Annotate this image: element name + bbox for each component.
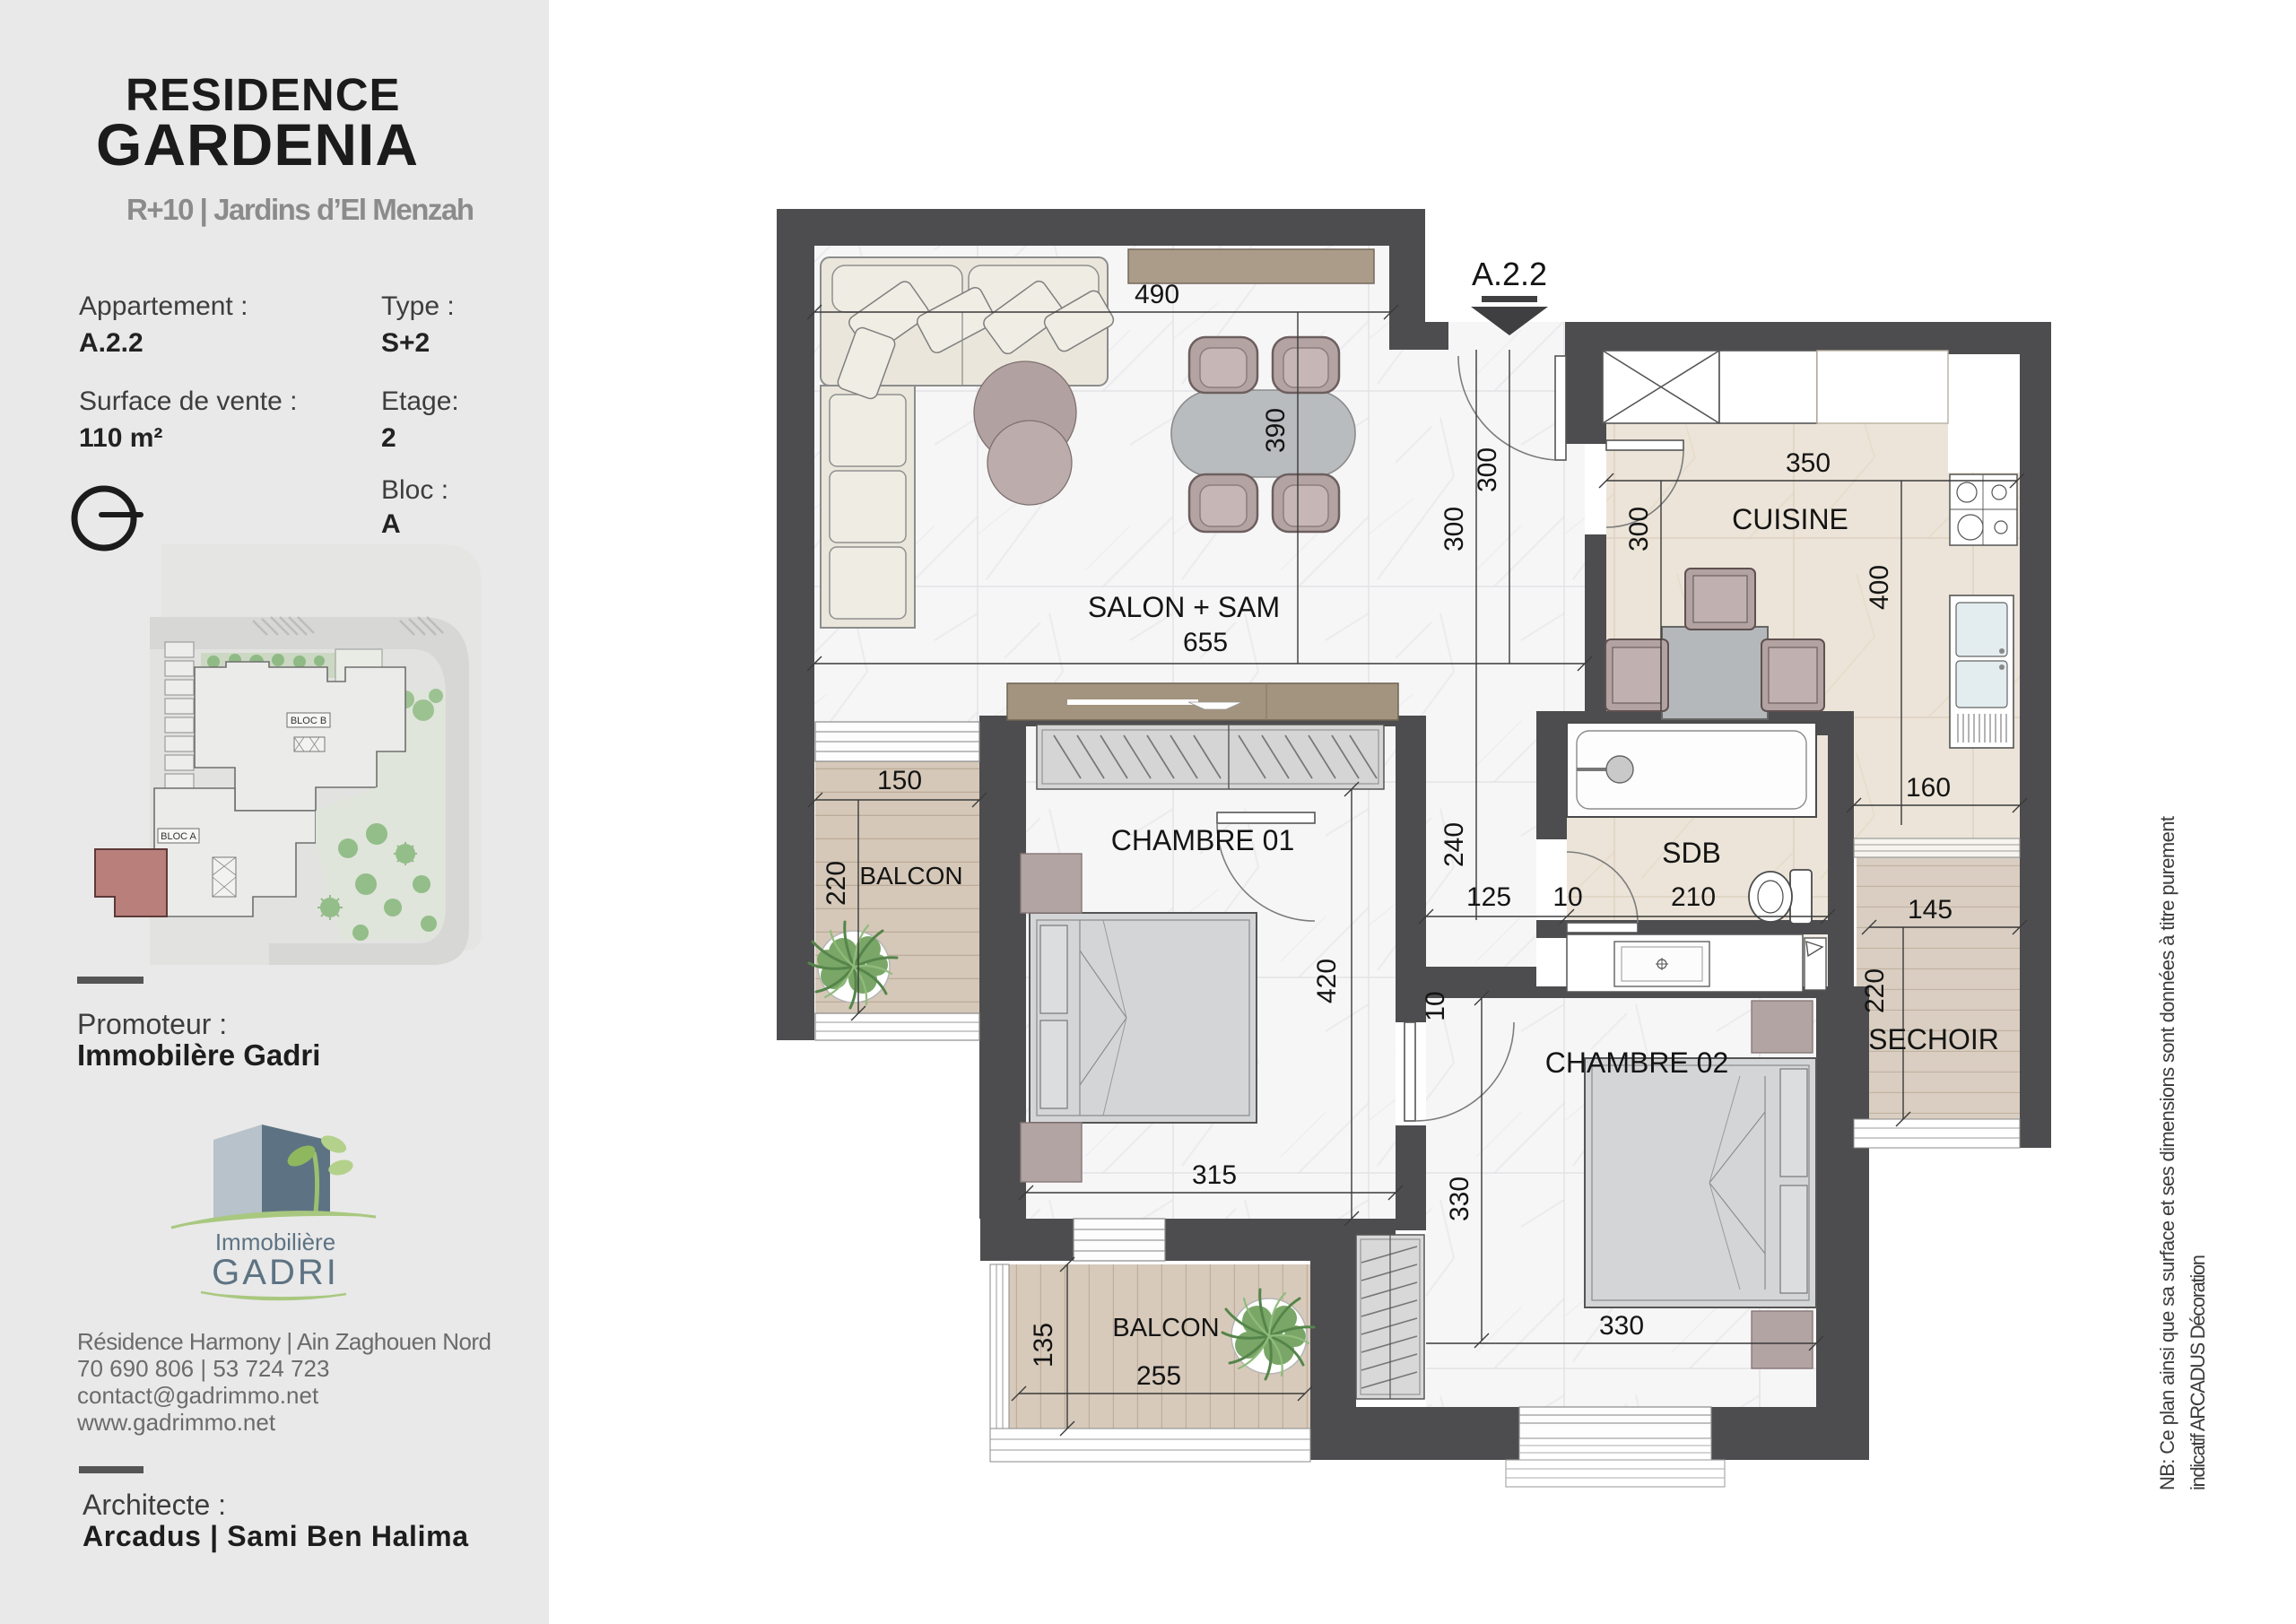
svg-text:300: 300: [1439, 507, 1469, 551]
svg-text:A: A: [381, 509, 401, 539]
svg-text:315: 315: [1192, 1160, 1237, 1190]
svg-text:490: 490: [1135, 280, 1179, 309]
svg-text:210: 210: [1671, 882, 1716, 912]
svg-text:330: 330: [1445, 1177, 1474, 1221]
svg-text:Arcadus | Sami Ben Halima: Arcadus | Sami Ben Halima: [83, 1520, 468, 1552]
svg-text:220: 220: [822, 861, 851, 906]
svg-text:Type :: Type :: [381, 291, 455, 321]
svg-text:SALON + SAM: SALON + SAM: [1088, 591, 1280, 623]
svg-text:contact@gadrimmo.net: contact@gadrimmo.net: [77, 1382, 319, 1409]
svg-text:110 m²: 110 m²: [79, 423, 162, 453]
svg-text:300: 300: [1624, 507, 1654, 551]
svg-text:Surface de vente :: Surface de vente :: [79, 386, 298, 416]
svg-text:420: 420: [1312, 959, 1342, 1003]
svg-text:655: 655: [1183, 628, 1228, 657]
svg-text:GADRI: GADRI: [212, 1253, 339, 1292]
svg-text:GARDENIA: GARDENIA: [96, 111, 419, 178]
svg-text:A.2.2: A.2.2: [79, 328, 143, 358]
svg-text:BALCON: BALCON: [859, 862, 962, 890]
svg-text:CHAMBRE 02: CHAMBRE 02: [1545, 1046, 1729, 1079]
svg-text:BLOC B: BLOC B: [291, 716, 326, 726]
svg-text:10: 10: [1552, 882, 1582, 912]
svg-text:Résidence Harmony | Ain Zaghou: Résidence Harmony | Ain Zaghouen Nord: [77, 1328, 491, 1355]
svg-text:CUISINE: CUISINE: [1732, 503, 1848, 535]
svg-text:Etage:: Etage:: [381, 386, 459, 416]
svg-text:NB: Ce plan ainsi que sa surfa: NB: Ce plan ainsi que sa surface et ses …: [2156, 816, 2179, 1490]
svg-text:R+10 | Jardins d’El Menzah: R+10 | Jardins d’El Menzah: [126, 193, 474, 226]
svg-text:70 690 806 | 53 724 723: 70 690 806 | 53 724 723: [77, 1355, 329, 1382]
svg-text:SECHOIR: SECHOIR: [1868, 1023, 1999, 1055]
svg-text:300: 300: [1473, 447, 1502, 492]
svg-text:350: 350: [1786, 448, 1831, 478]
svg-text:SDB: SDB: [1662, 837, 1721, 869]
svg-text:Promoteur :: Promoteur :: [77, 1008, 227, 1040]
svg-text:Appartement :: Appartement :: [79, 291, 248, 321]
svg-text:145: 145: [1908, 895, 1952, 925]
svg-text:Immobilière: Immobilière: [215, 1229, 335, 1255]
svg-text:220: 220: [1860, 968, 1890, 1013]
svg-text:BALCON: BALCON: [1112, 1314, 1219, 1342]
svg-text:www.gadrimmo.net: www.gadrimmo.net: [76, 1409, 276, 1436]
svg-text:390: 390: [1261, 408, 1291, 453]
svg-text:400: 400: [1865, 565, 1894, 610]
svg-text:135: 135: [1029, 1323, 1058, 1368]
svg-text:S+2: S+2: [381, 328, 430, 358]
svg-text:Bloc :: Bloc :: [381, 475, 448, 505]
svg-text:Architecte :: Architecte :: [83, 1489, 226, 1521]
svg-text:330: 330: [1599, 1311, 1644, 1341]
svg-text:Immobilère Gadri: Immobilère Gadri: [77, 1038, 320, 1072]
svg-text:10: 10: [1421, 991, 1450, 1020]
svg-text:CHAMBRE 01: CHAMBRE 01: [1111, 824, 1295, 856]
svg-text:BLOC A: BLOC A: [161, 831, 196, 842]
svg-text:255: 255: [1136, 1361, 1181, 1391]
svg-text:2: 2: [381, 423, 396, 453]
svg-text:A.2.2: A.2.2: [1472, 256, 1547, 292]
svg-text:indicatif ARCADUS Décoration: indicatif ARCADUS Décoration: [2187, 1255, 2209, 1490]
svg-text:160: 160: [1906, 773, 1951, 803]
svg-text:150: 150: [877, 766, 922, 795]
svg-text:125: 125: [1466, 882, 1511, 912]
svg-text:240: 240: [1439, 822, 1469, 867]
